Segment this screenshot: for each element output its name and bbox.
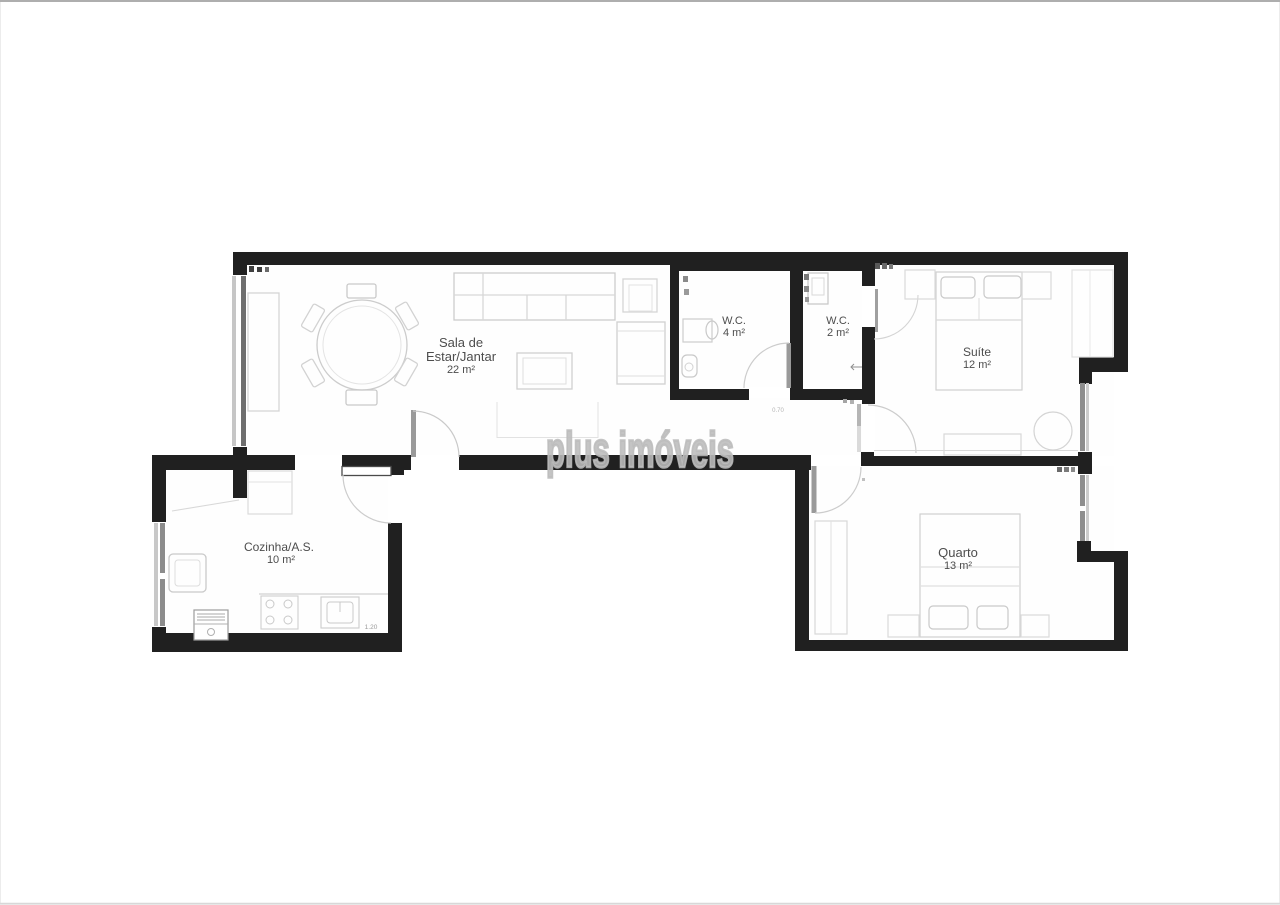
svg-text:plus imóveis: plus imóveis	[546, 422, 734, 478]
svg-text:1.20: 1.20	[365, 624, 378, 631]
svg-text:22 m²: 22 m²	[447, 364, 475, 376]
svg-text:W.C.: W.C.	[722, 315, 746, 327]
svg-text:0.70: 0.70	[772, 408, 784, 414]
svg-text:Suíte: Suíte	[963, 345, 991, 359]
svg-text:Estar/Jantar: Estar/Jantar	[426, 349, 497, 364]
svg-text:12 m²: 12 m²	[963, 359, 991, 371]
svg-text:2 m²: 2 m²	[827, 327, 849, 339]
svg-text:Sala de: Sala de	[439, 335, 483, 350]
svg-text:Quarto: Quarto	[938, 545, 978, 560]
svg-text:Cozinha/A.S.: Cozinha/A.S.	[244, 540, 314, 554]
svg-text:W.C.: W.C.	[826, 315, 850, 327]
svg-text:4 m²: 4 m²	[723, 327, 745, 339]
svg-text:10 m²: 10 m²	[267, 554, 295, 566]
svg-text:13 m²: 13 m²	[944, 560, 972, 572]
